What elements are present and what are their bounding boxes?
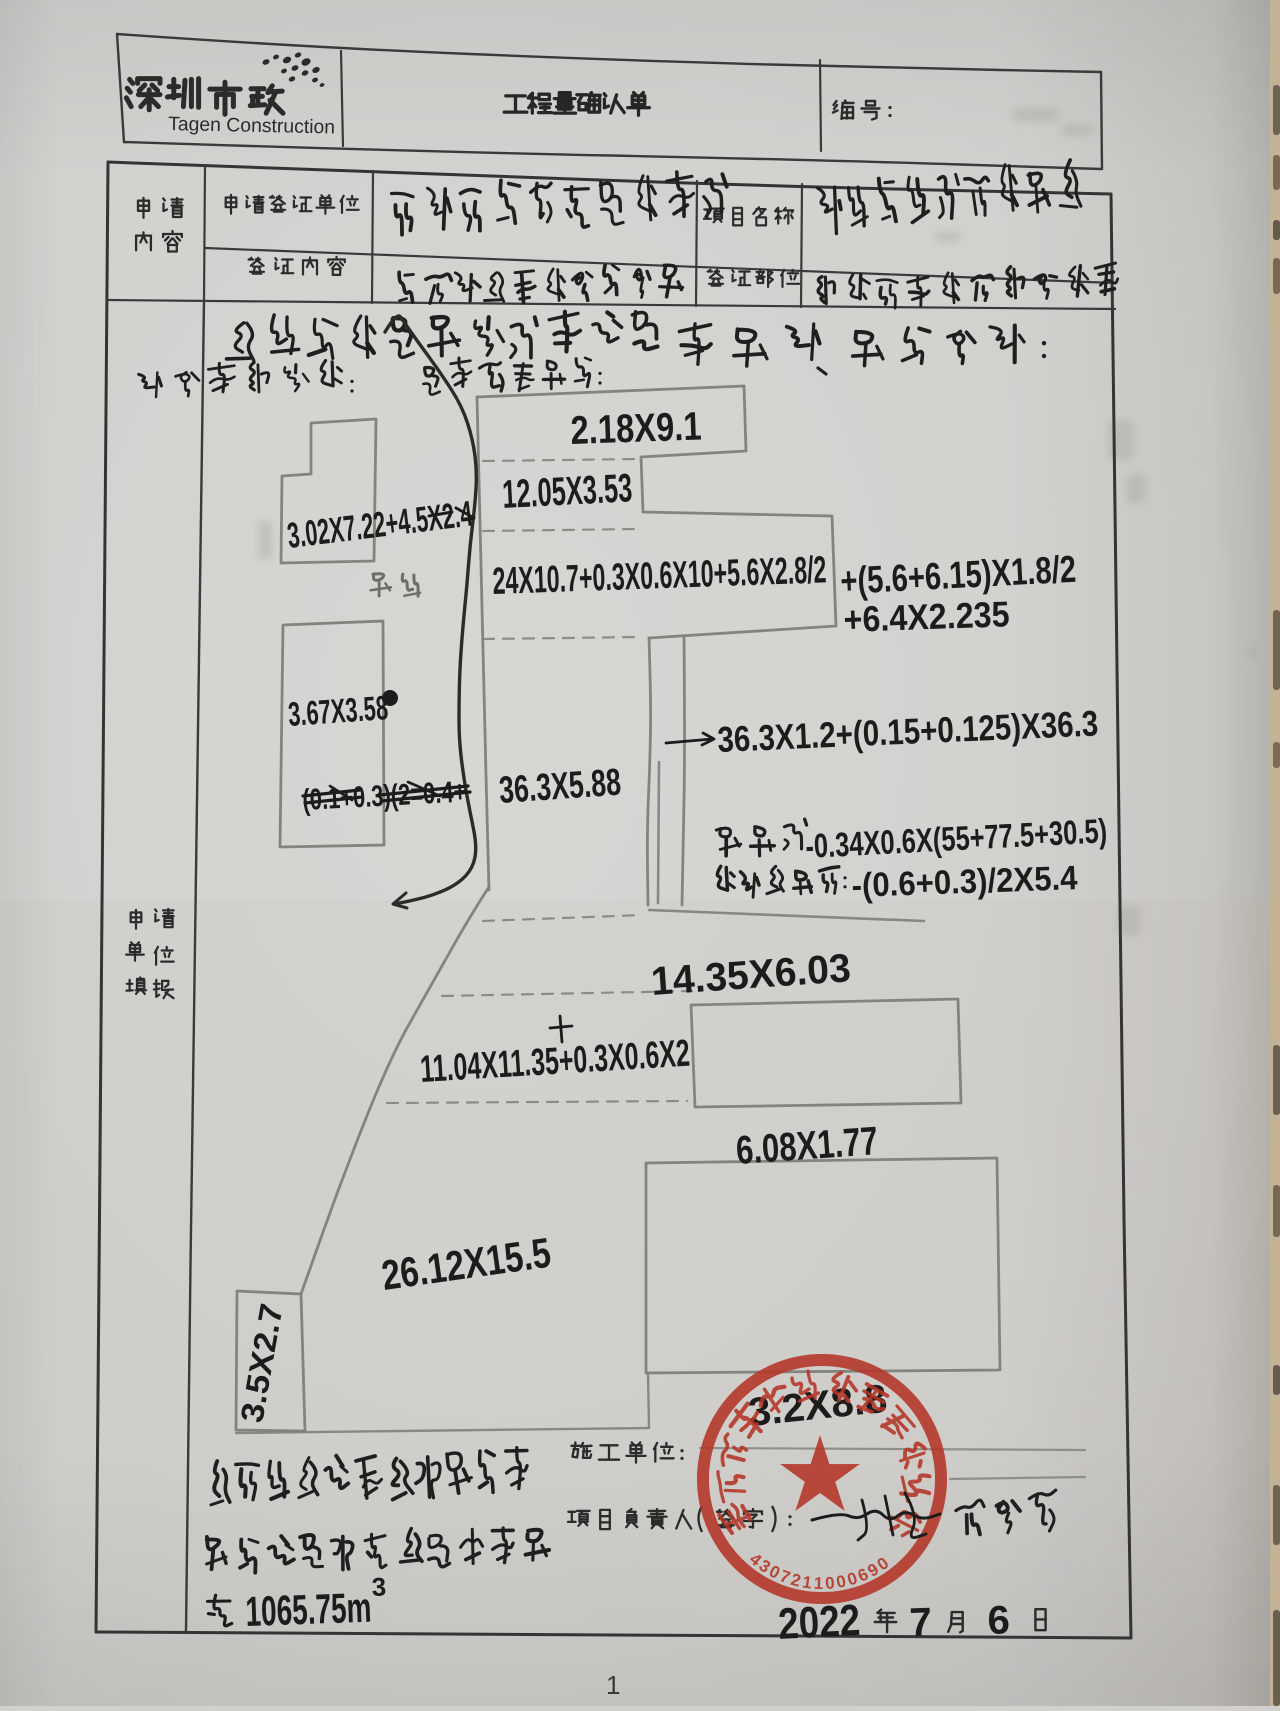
svg-text:3: 3 [371, 1572, 387, 1602]
svg-text:0: 0 [824, 1573, 835, 1593]
svg-text:7: 7 [909, 1600, 933, 1645]
svg-text:1: 1 [606, 1670, 620, 1700]
svg-text:6: 6 [987, 1598, 1011, 1643]
svg-text:+6.4X2.235: +6.4X2.235 [843, 593, 1010, 640]
svg-text:36.3X5.88: 36.3X5.88 [498, 762, 623, 812]
svg-text:1065.75m: 1065.75m [245, 1584, 373, 1635]
svg-text:3.67X3.58: 3.67X3.58 [287, 689, 389, 734]
svg-text:-(0.6+0.3)/2X5.4: -(0.6+0.3)/2X5.4 [851, 859, 1078, 905]
svg-text:Tagen Construction: Tagen Construction [168, 113, 335, 138]
svg-text:1: 1 [813, 1574, 823, 1593]
svg-text:2022: 2022 [777, 1596, 861, 1649]
svg-text:12.05X3.53: 12.05X3.53 [501, 466, 633, 517]
svg-text:2.18X9.1: 2.18X9.1 [570, 404, 702, 453]
